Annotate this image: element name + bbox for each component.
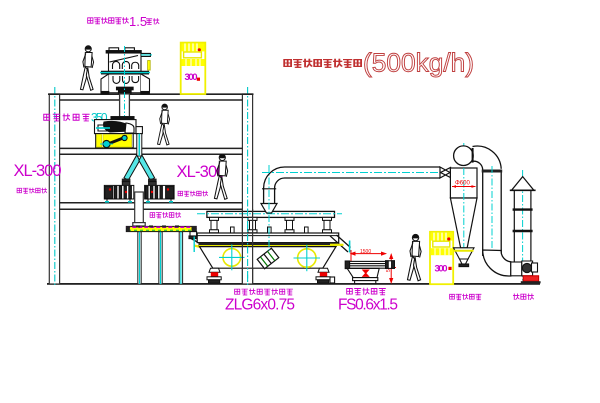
svg-text:300: 300 (185, 72, 198, 83)
svg-text:300: 300 (435, 264, 448, 275)
svg-text:Φ600: Φ600 (455, 181, 470, 187)
svg-text:1500: 1500 (360, 249, 371, 255)
svg-text:XL-300: XL-300 (14, 162, 62, 180)
svg-text:1.5: 1.5 (129, 14, 147, 29)
svg-text:FS0.6x1.5: FS0.6x1.5 (338, 297, 398, 314)
svg-text:(500kg/h): (500kg/h) (363, 48, 474, 78)
svg-text:ZLG6x0.75: ZLG6x0.75 (225, 297, 295, 314)
